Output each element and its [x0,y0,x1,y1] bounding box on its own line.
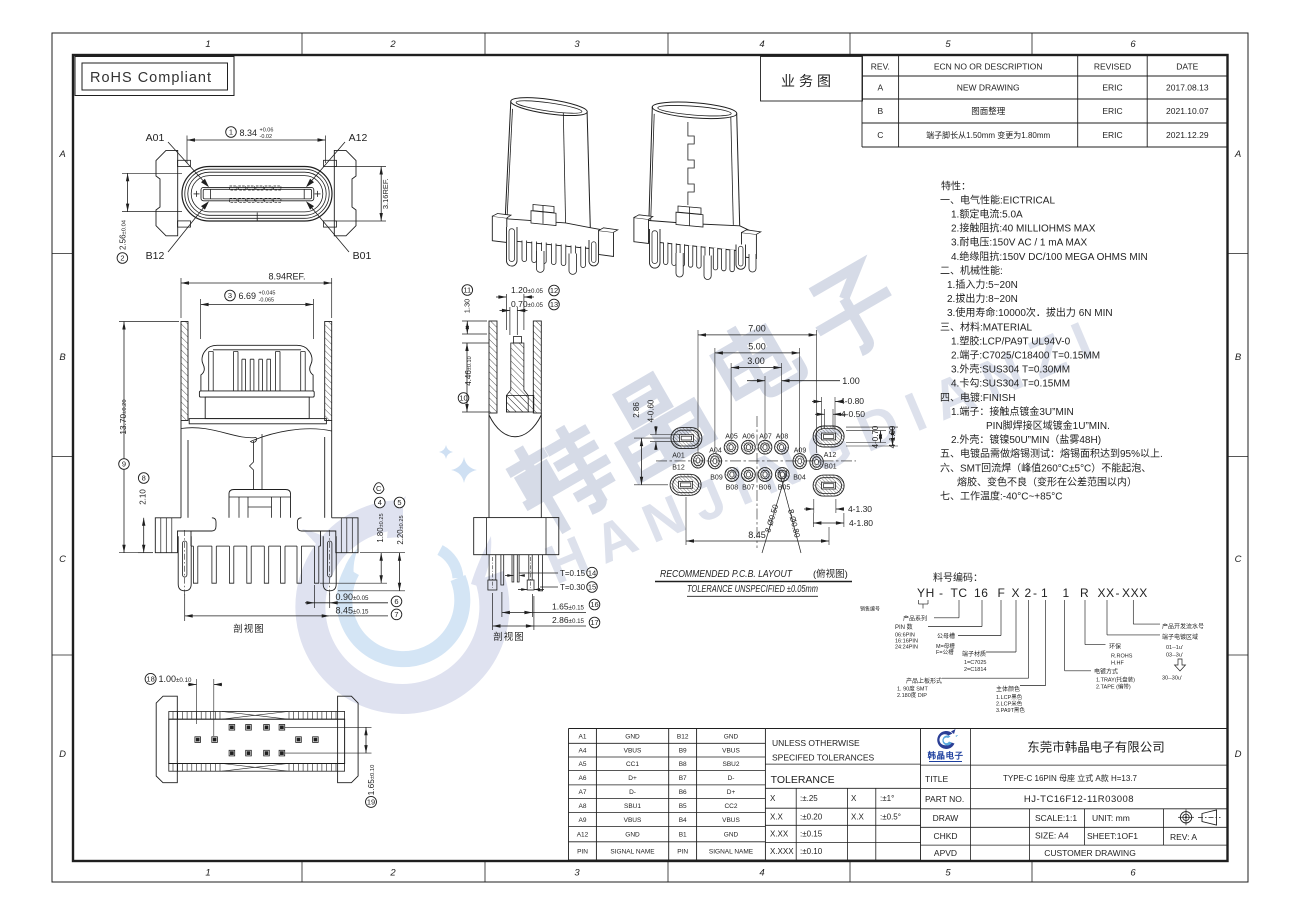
svg-text:+0.06: +0.06 [260,128,274,134]
svg-text:2: 2 [389,39,396,50]
svg-text:B09: B09 [710,475,723,482]
svg-text:三、材料:MATERIAL: 三、材料:MATERIAL [940,320,1032,333]
svg-text:8: 8 [142,474,146,483]
svg-text:RoHS Compliant: RoHS Compliant [90,70,212,86]
svg-text:B01: B01 [824,464,837,471]
svg-text:VBUS: VBUS [722,817,740,824]
svg-text:2: 2 [120,254,124,263]
svg-text:D-: D- [629,789,636,796]
svg-text:4-0.80: 4-0.80 [840,396,864,406]
svg-text:B04: B04 [793,475,806,482]
svg-text:2.86: 2.86 [632,402,641,418]
svg-text:30--30u': 30--30u' [1162,676,1182,682]
svg-text:2: 2 [389,868,396,879]
svg-text:3: 3 [574,868,580,879]
svg-text:B5: B5 [679,803,687,810]
svg-text:3.16REF.: 3.16REF. [381,178,390,209]
svg-text:GND: GND [625,733,640,740]
svg-text:SIGNAL NAME: SIGNAL NAME [610,848,655,855]
svg-text:1: 1 [1063,586,1070,600]
svg-text:A6: A6 [579,775,587,782]
svg-text:9: 9 [122,460,126,469]
svg-text:4: 4 [759,39,764,50]
svg-text:SCALE:1:1: SCALE:1:1 [1035,813,1077,823]
svg-text:X: X [1012,586,1021,600]
svg-text:18: 18 [146,675,154,684]
svg-text:-: - [1033,586,1038,600]
svg-text:A4: A4 [579,748,587,755]
svg-text:产品开发流水号: 产品开发流水号 [1162,623,1204,631]
svg-text:B12: B12 [677,733,689,740]
svg-text:B06: B06 [759,484,772,491]
svg-text:四、电镀:FINISH: 四、电镀:FINISH [940,391,1016,404]
svg-text:A7: A7 [579,789,587,796]
svg-text:6: 6 [1130,868,1136,879]
svg-text:剖视图: 剖视图 [493,631,525,643]
svg-text:SHEET:1OF1: SHEET:1OF1 [1087,831,1138,841]
svg-text:D-: D- [728,775,735,782]
svg-text:B07: B07 [742,484,755,491]
svg-text:环保: 环保 [1109,643,1121,651]
svg-text:B08: B08 [726,484,739,491]
svg-text:B9: B9 [679,748,687,755]
svg-text:4: 4 [759,868,764,879]
svg-text:1: 1 [205,868,210,879]
svg-text:24:24PIN: 24:24PIN [895,644,918,650]
svg-text:主体颜色: 主体颜色 [996,685,1020,693]
svg-text:4.卡勾:SUS304 T=0.15MM: 4.卡勾:SUS304 T=0.15MM [951,377,1070,390]
svg-text:GND: GND [724,733,739,740]
svg-text:一、电气性能:EICTRICAL: 一、电气性能:EICTRICAL [940,193,1055,206]
svg-text:2.端子:C7025/C18400 T=0.15MM: 2.端子:C7025/C18400 T=0.15MM [951,349,1100,362]
svg-text:B7: B7 [679,775,687,782]
svg-text:A08: A08 [776,434,789,441]
svg-text:产品上板形式: 产品上板形式 [906,677,942,685]
svg-text:PIN: PIN [677,848,688,855]
svg-text:A: A [1234,149,1241,160]
svg-text:4-0.60: 4-0.60 [647,399,656,422]
svg-text:TYPE-C 16PIN 母座 立式 A款 H=13.7: TYPE-C 16PIN 母座 立式 A款 H=13.7 [1003,773,1138,783]
svg-text:D: D [1235,749,1242,760]
svg-text::±0.10: :±0.10 [800,847,823,856]
svg-text:2.外壳：镀镍50U”MIN（盐雾48H): 2.外壳：镀镍50U”MIN（盐雾48H) [951,433,1101,446]
svg-text:C: C [59,554,66,565]
svg-text:1.LCP黑色: 1.LCP黑色 [996,693,1023,701]
svg-text:A5: A5 [579,761,587,768]
svg-text:5.00: 5.00 [748,341,766,351]
svg-text:T=0.15: T=0.15 [560,569,586,578]
svg-text:7.00: 7.00 [748,323,766,333]
svg-text:16: 16 [590,600,598,609]
svg-text:端子电镀区域: 端子电镀区域 [1162,633,1198,641]
svg-text:ECN NO OR DESCRIPTION: ECN NO OR DESCRIPTION [934,62,1043,72]
svg-text:4-1.30: 4-1.30 [848,504,872,514]
svg-text:3.耐电压:150V AC / 1 mA MAX: 3.耐电压:150V AC / 1 mA MAX [951,236,1087,249]
svg-text:B12: B12 [146,250,165,262]
svg-text:1. 90度 SMT: 1. 90度 SMT [897,685,929,693]
svg-text:3: 3 [228,291,232,300]
svg-text:PIN: PIN [577,848,588,855]
svg-text:图面整理: 图面整理 [971,106,1006,116]
svg-text:XXX: XXX [1122,586,1148,600]
svg-text:R.ROHS: R.ROHS [1111,654,1133,660]
svg-text:GND: GND [625,832,640,839]
svg-text:2.LCP米色: 2.LCP米色 [996,700,1023,708]
svg-text:2021.10.07: 2021.10.07 [1166,106,1209,116]
svg-text:东莞市韩晶电子有限公司: 东莞市韩晶电子有限公司 [1027,740,1165,755]
svg-text:SBU1: SBU1 [624,803,641,810]
svg-text:X.XX: X.XX [770,830,789,839]
svg-text:ERIC: ERIC [1102,83,1122,93]
svg-text:-0.02: -0.02 [260,134,273,140]
svg-text:DRAW: DRAW [933,813,959,823]
svg-text:TOLERANCE: TOLERANCE [771,774,835,786]
svg-text:X.X: X.X [770,813,784,822]
svg-text:4-0.50: 4-0.50 [841,409,865,419]
svg-text:6.69: 6.69 [239,291,257,301]
svg-text:R: R [1080,586,1089,600]
svg-text:1.塑胶:LCP/PA9T UL94V-0: 1.塑胶:LCP/PA9T UL94V-0 [951,334,1071,347]
svg-text:A9: A9 [579,817,587,824]
svg-text:C: C [877,130,883,140]
svg-text:3.00: 3.00 [747,356,765,366]
svg-text:韩晶电子: 韩晶电子 [927,751,963,761]
svg-text:01--1u': 01--1u' [1166,645,1183,651]
svg-text:VBUS: VBUS [722,748,740,755]
svg-text:A: A [58,149,65,160]
svg-text:-: - [939,586,944,600]
svg-text:销售编号: 销售编号 [860,606,880,613]
svg-text:3.PA9T黑色: 3.PA9T黑色 [996,706,1025,714]
svg-text:16: 16 [974,586,989,600]
svg-text:VBUS: VBUS [624,748,642,755]
svg-text:A06: A06 [742,434,755,441]
svg-text:ERIC: ERIC [1102,106,1122,116]
svg-text:六、SMT回流焊（峰值260°C±5°C）不能起泡、: 六、SMT回流焊（峰值260°C±5°C）不能起泡、 [940,461,1151,474]
svg-text:2: 2 [1025,586,1032,600]
svg-text:+0.045: +0.045 [259,291,276,297]
svg-text:5: 5 [945,868,951,879]
svg-text:11: 11 [463,286,471,295]
svg-text::±0.15: :±0.15 [800,830,823,839]
svg-text:TC: TC [951,586,968,600]
svg-text:10: 10 [459,394,467,403]
svg-text:1: 1 [1041,586,1048,600]
svg-text:1.00: 1.00 [842,376,860,386]
svg-text:产品系列: 产品系列 [903,615,927,623]
svg-text:D: D [59,749,66,760]
svg-text:APVD: APVD [934,848,957,858]
svg-text:B6: B6 [679,789,687,796]
svg-text:XX: XX [1098,586,1115,600]
svg-text:2.拔出力:8~20N: 2.拔出力:8~20N [947,292,1018,305]
svg-text:YH: YH [917,586,935,600]
svg-text:6: 6 [1130,39,1136,50]
svg-text:CHKD: CHKD [933,831,957,841]
svg-text:X.XXX: X.XXX [770,847,794,856]
svg-text:B8: B8 [679,761,687,768]
svg-text:UNIT: mm: UNIT: mm [1092,813,1130,823]
svg-text:七、工作温度:-40°C~+85°C: 七、工作温度:-40°C~+85°C [940,490,1062,503]
svg-text:B4: B4 [679,817,687,824]
svg-text:REV.: REV. [871,62,890,72]
svg-text:VBUS: VBUS [624,817,642,824]
svg-text::±0.5°: :±0.5° [880,813,901,822]
svg-text:A05: A05 [725,434,738,441]
svg-text:剖视图: 剖视图 [233,623,265,635]
svg-text:二、机械性能:: 二、机械性能: [940,264,1003,277]
svg-text:6: 6 [394,597,398,606]
svg-text:A12: A12 [577,832,589,839]
svg-text:D+: D+ [727,789,736,796]
svg-text:1.额定电流:5.0A: 1.额定电流:5.0A [951,208,1023,221]
svg-text:4-0.70: 4-0.70 [871,425,880,448]
svg-text:-0.065: -0.065 [259,298,275,304]
svg-text:UNLESS OTHERWISE: UNLESS OTHERWISE [772,738,860,748]
svg-text:2=C1814: 2=C1814 [964,667,986,673]
svg-text:SIGNAL NAME: SIGNAL NAME [709,848,754,855]
svg-text:B: B [877,106,883,116]
svg-text:A04: A04 [709,447,722,454]
svg-text:2017.08.13: 2017.08.13 [1166,83,1209,93]
svg-text:料号编码：: 料号编码： [933,571,983,584]
svg-text:14: 14 [588,568,596,577]
svg-text:SPECIFED TOLERANCES: SPECIFED TOLERANCES [772,753,875,763]
svg-text:8.94REF.: 8.94REF. [268,272,305,282]
svg-text:CUSTOMER DRAWING: CUSTOMER DRAWING [1044,848,1136,858]
svg-text:CC2: CC2 [724,803,737,810]
svg-text:4: 4 [378,498,382,507]
svg-text:RECOMMENDED P.C.B. LAYOUT: RECOMMENDED P.C.B. LAYOUT [660,568,793,580]
svg-text:C: C [376,484,382,493]
svg-text:REVISED: REVISED [1094,62,1131,72]
svg-text:M=母槽: M=母槽 [936,642,955,650]
svg-text::±1°: :±1° [880,794,894,803]
svg-text:03--3u': 03--3u' [1166,653,1183,659]
svg-text:-: - [1116,586,1121,600]
svg-text:15: 15 [588,583,596,592]
svg-text:五、电镀品需做熔锡测试：熔锡面积达到95%以上.: 五、电镀品需做熔锡测试：熔锡面积达到95%以上. [940,447,1163,460]
svg-text:4-1.80: 4-1.80 [849,518,873,528]
svg-text:2.180度 DIP: 2.180度 DIP [897,691,927,699]
svg-text:C: C [1235,554,1242,565]
svg-text:3.外壳:SUS304 T=0.30MM: 3.外壳:SUS304 T=0.30MM [951,363,1070,376]
svg-text:B12: B12 [672,465,685,472]
svg-text:H.HF: H.HF [1111,661,1124,667]
svg-text:A09: A09 [794,447,807,454]
svg-text:3.使用寿命:10000次．拔出力 6N MIN: 3.使用寿命:10000次．拔出力 6N MIN [947,306,1113,319]
svg-text:ERIC: ERIC [1102,130,1122,140]
svg-text:7: 7 [394,610,398,619]
svg-text:A01: A01 [672,453,685,460]
svg-text:A01: A01 [146,132,165,144]
svg-text:4-1.00: 4-1.00 [888,425,897,448]
svg-text:PIN脚焊接区域镀金1U”MIN.: PIN脚焊接区域镀金1U”MIN. [986,419,1110,432]
svg-text:特性：: 特性： [941,179,971,192]
svg-text:1.30: 1.30 [463,299,472,314]
svg-text:X.X: X.X [851,813,865,822]
svg-text:B1: B1 [679,832,687,839]
svg-text:3: 3 [574,39,580,50]
svg-text::±.25: :±.25 [800,794,818,803]
svg-text:13: 13 [550,300,558,309]
svg-text:电镀方式: 电镀方式 [1094,668,1118,676]
svg-text:12: 12 [550,286,558,295]
svg-text:A8: A8 [579,803,587,810]
svg-text:17: 17 [590,618,598,627]
svg-text:业务图: 业务图 [781,73,835,89]
svg-text:2.10: 2.10 [138,489,147,505]
svg-text:1=C7025: 1=C7025 [964,660,986,666]
svg-text:REV: A: REV: A [1170,832,1197,842]
svg-text:1: 1 [229,128,233,137]
svg-text:(俯视图): (俯视图) [813,568,848,580]
svg-text:CC1: CC1 [626,761,639,768]
svg-text:D+: D+ [628,775,637,782]
svg-text:A12: A12 [824,452,837,459]
svg-text:1.端子：接触点镀金3U”MIN: 1.端子：接触点镀金3U”MIN [951,405,1074,418]
svg-text:熔胶、变色不良（变形在公差范围以内）: 熔胶、变色不良（变形在公差范围以内） [957,475,1137,488]
svg-text:5: 5 [945,39,951,50]
svg-text:X: X [770,794,776,803]
svg-text:B01: B01 [353,250,372,262]
svg-text:4.绝缘阻抗:150V DC/100 MEGA OHMS M: 4.绝缘阻抗:150V DC/100 MEGA OHMS MIN [951,250,1148,263]
svg-text:A07: A07 [759,434,772,441]
svg-text:B: B [1235,352,1242,363]
svg-text::±0.20: :±0.20 [800,813,823,822]
svg-text:TOLERANCE UNSPECIFIED ±0.05mm: TOLERANCE UNSPECIFIED ±0.05mm [687,584,818,595]
svg-text:A: A [877,83,883,93]
svg-text:端子材质: 端子材质 [962,650,986,658]
svg-text:SBU2: SBU2 [723,761,740,768]
svg-text:NEW DRAWING: NEW DRAWING [957,83,1020,93]
svg-text:TITLE: TITLE [925,774,948,784]
svg-text:T=0.30: T=0.30 [560,583,586,592]
svg-text:端子脚长从1.50mm 变更为1.80mm: 端子脚长从1.50mm 变更为1.80mm [926,130,1050,140]
svg-text:X: X [851,794,857,803]
svg-text:2021.12.29: 2021.12.29 [1166,130,1209,140]
svg-text:F: F [998,586,1006,600]
svg-text:HJ-TC16F12-11R03008: HJ-TC16F12-11R03008 [1024,794,1134,805]
svg-text:F=公槽: F=公槽 [936,648,954,656]
svg-text:8.34: 8.34 [240,128,258,138]
svg-text:2.TAPE (编带): 2.TAPE (编带) [1096,683,1131,691]
svg-text:5: 5 [397,498,401,507]
svg-text:SIZE: A4: SIZE: A4 [1035,831,1069,841]
svg-text:PART NO.: PART NO. [925,794,964,804]
svg-text:A1: A1 [579,733,587,740]
svg-text:公母槽: 公母槽 [937,632,955,640]
svg-text:1.插入力:5~20N: 1.插入力:5~20N [947,278,1018,291]
svg-text:1: 1 [205,39,210,50]
svg-text:DATE: DATE [1176,62,1198,72]
svg-text:B: B [59,352,66,363]
svg-text:A12: A12 [349,132,368,144]
svg-text:PIN 数: PIN 数 [895,623,913,631]
svg-text:1.TRAY(托盘装): 1.TRAY(托盘装) [1096,676,1135,684]
svg-text:2.接触阻抗:40 MILLIOHMS MAX: 2.接触阻抗:40 MILLIOHMS MAX [951,222,1096,235]
svg-text:GND: GND [724,832,739,839]
svg-text:19: 19 [367,798,375,807]
